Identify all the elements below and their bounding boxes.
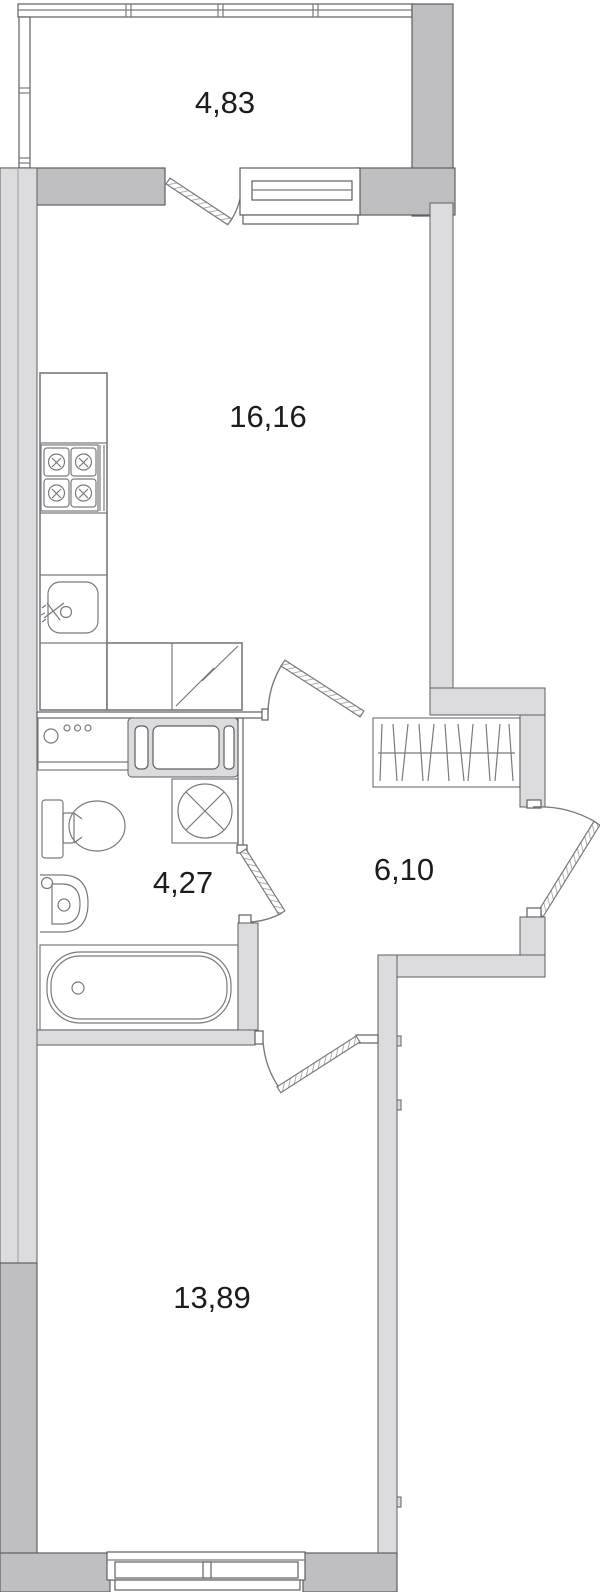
kitchen-window-icon [240, 168, 360, 224]
toilet-icon [42, 800, 125, 858]
bedroom: 13,89 [0, 955, 401, 1592]
bathroom: 4,27 [37, 718, 285, 1045]
door-swing-icon [281, 660, 364, 717]
wall-nub [397, 1497, 401, 1507]
room-label-hallway: 6,10 [374, 852, 434, 887]
room-label-bathroom: 4,27 [153, 865, 213, 900]
bathtub-icon [40, 945, 238, 1030]
door-swing-icon [277, 1036, 360, 1093]
kitchen-wall-right [430, 203, 453, 690]
balcony-parapet [0, 168, 455, 225]
wall-left [0, 168, 37, 1563]
door-swing-icon [166, 178, 232, 225]
wall-nub [397, 1036, 401, 1046]
hallway-wall-bottom [378, 955, 545, 977]
balcony-door [166, 178, 242, 225]
room-label-kitchen: 16,16 [229, 399, 307, 434]
kitchen-counter-icon [40, 373, 242, 710]
kitchen-living-room: 16,16 [40, 203, 453, 710]
entrance-door-icon [537, 821, 600, 916]
balcony-glazing-left [19, 17, 30, 168]
entrance-door [527, 800, 600, 917]
hallway-wall-top [430, 688, 545, 715]
balcony-glazing-top [18, 4, 412, 17]
hallway-wall-right-upper [520, 715, 545, 807]
room-label-bedroom: 13,89 [173, 1280, 251, 1315]
hallway: 6,10 [373, 688, 600, 977]
floor-plan-canvas: 4,83 [0, 0, 600, 1592]
built-in-unit-icon [128, 718, 238, 777]
bedroom-door [255, 1031, 378, 1093]
cabinet-with-controls-icon [38, 718, 133, 770]
washing-machine-icon [172, 779, 238, 843]
floor-plan: 4,83 [0, 0, 600, 1592]
washbasin-icon [40, 875, 88, 932]
kitchen-hallway-door [262, 660, 364, 720]
bedroom-wall-right [378, 955, 397, 1560]
room-label-balcony: 4,83 [195, 85, 255, 120]
bathroom-wall-right [238, 923, 258, 1030]
door-swing-icon [240, 849, 285, 915]
bedroom-window-icon [107, 1552, 305, 1590]
wall-nub [397, 1100, 401, 1110]
wardrobe-hanger-rail-icon [373, 718, 520, 787]
bathroom-wall-bottom [37, 1030, 255, 1045]
bathroom-partition-right [238, 718, 243, 848]
bathroom-door [237, 845, 285, 924]
